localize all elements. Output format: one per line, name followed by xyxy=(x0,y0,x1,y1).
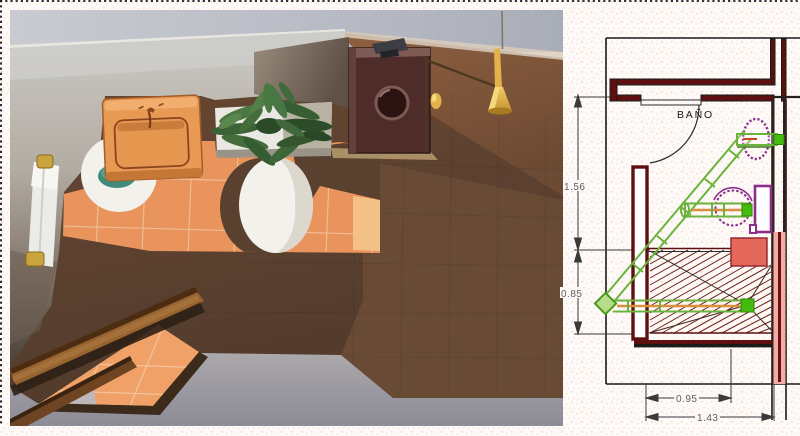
svg-text:1.56: 1.56 xyxy=(564,182,585,193)
svg-text:BAÑO: BAÑO xyxy=(677,108,714,121)
svg-text:0.95: 0.95 xyxy=(676,394,697,405)
svg-text:0.85: 0.85 xyxy=(561,289,582,300)
svg-text:1.43: 1.43 xyxy=(697,413,718,424)
